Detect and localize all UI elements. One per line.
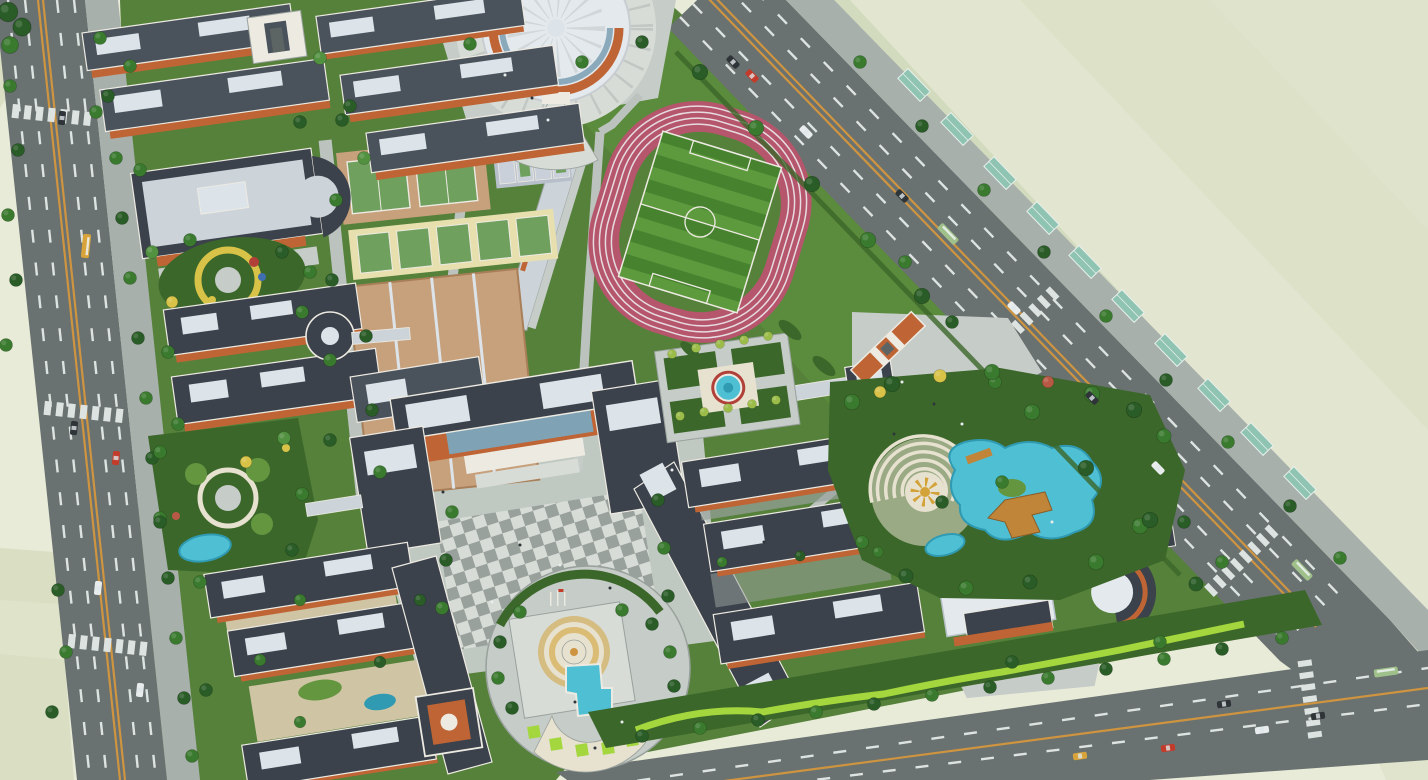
clock-tower bbox=[416, 688, 483, 756]
car bbox=[94, 581, 102, 596]
square-pond-garden bbox=[655, 333, 800, 443]
gym-dome-cap bbox=[547, 19, 565, 37]
field-stripe bbox=[0, 600, 66, 660]
south-fountain-plaza bbox=[486, 566, 690, 772]
car bbox=[112, 451, 120, 466]
north-gate bbox=[247, 10, 307, 63]
scene-svg bbox=[0, 0, 1428, 780]
flag bbox=[558, 589, 563, 592]
car bbox=[70, 421, 78, 436]
car bbox=[58, 111, 66, 126]
round-window bbox=[438, 711, 461, 734]
car bbox=[136, 683, 144, 698]
campus-aerial-rendering bbox=[0, 0, 1428, 780]
